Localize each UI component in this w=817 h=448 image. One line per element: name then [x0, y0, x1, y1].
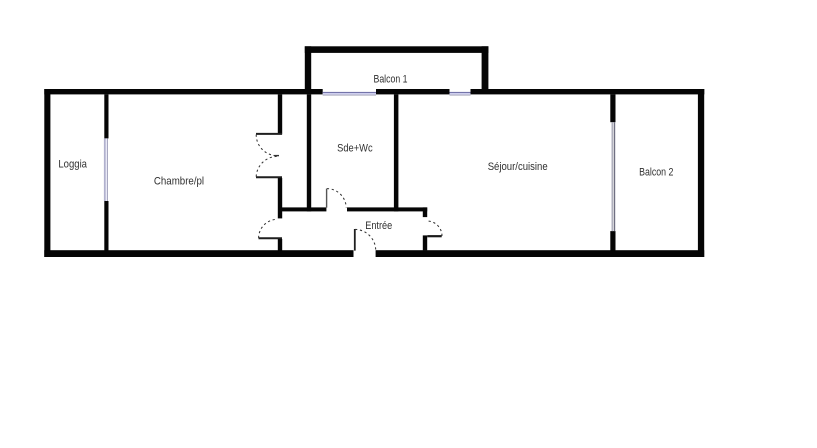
svg-text:Entrée: Entrée: [365, 220, 392, 232]
svg-text:Sde+Wc: Sde+Wc: [337, 142, 373, 154]
svg-text:Balcon 1: Balcon 1: [374, 73, 408, 85]
svg-text:Chambre/pl: Chambre/pl: [154, 175, 204, 187]
svg-text:Loggia: Loggia: [58, 159, 87, 171]
svg-text:Balcon 2: Balcon 2: [639, 166, 673, 178]
svg-text:Séjour/cuisine: Séjour/cuisine: [488, 161, 548, 173]
